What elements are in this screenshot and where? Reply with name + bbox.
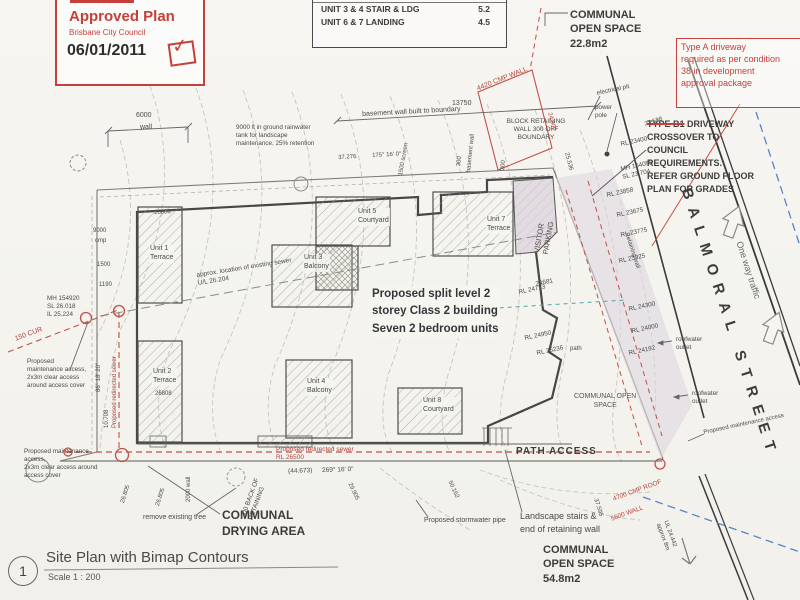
label-bearing-269: 269° 16' 0" — [322, 466, 354, 475]
label-maintenance-access-1: Proposed maintenance access, 2x3m clear … — [27, 358, 86, 389]
drawing-scale: Scale 1 : 200 — [48, 572, 101, 582]
label-26808-a: 26808 — [154, 209, 171, 217]
site-plan-document: Approved Plan Brisbane City Council 06/0… — [0, 0, 800, 600]
power-pole-symbol — [605, 152, 610, 157]
unit-area-table: UNIT 3 & 4 STAIR & LDG 5.2 UNIT 6 & 7 LA… — [312, 0, 507, 48]
drawing-title: Site Plan with Bimap Contours — [46, 549, 249, 566]
unit5-label: Unit 5 Courtyard — [357, 208, 390, 226]
label-power-pole: power pole — [595, 104, 612, 120]
label-cmp: cmp — [95, 238, 106, 246]
unit4-balcony-area — [286, 360, 352, 438]
type-b1-crossover-note: TYPE B1 DRIVEWAY CROSSOVER TO COUNCIL RE… — [647, 118, 799, 196]
stamp-top-edge — [70, 0, 134, 3]
label-rainwater-tank: 9000 lt in ground rainwater tank for lan… — [236, 124, 314, 148]
label-10708: 10.708 — [104, 410, 112, 428]
label-mh154920: MH 154920 SL 26.018 IL 25.224 — [47, 295, 80, 319]
label-26808-b: 26808 — [155, 391, 172, 399]
label-300-offset-b: 300 — [500, 160, 509, 171]
row-value: 5.2 — [478, 4, 490, 14]
label-remove-tree: remove existing tree — [143, 514, 206, 523]
label-redirected-sewer-vertical: Proposed redirected sewer — [112, 356, 120, 428]
label-redirected-sewer-bottom: Proposed redirected sewer RL 26500 — [276, 446, 354, 462]
unit2-label: Unit 2 Terrace — [152, 368, 177, 386]
stamp-title: Approved Plan — [69, 8, 175, 25]
label-path: path — [570, 346, 582, 354]
stamp-date: 06/01/2011 — [67, 42, 146, 60]
approval-stamp: Approved Plan Brisbane City Council 06/0… — [55, 0, 205, 86]
label-300-offset-a: 300 — [456, 156, 465, 167]
label-landscape-stairs: Landscape stairs & end of retaining wall — [520, 510, 600, 535]
row-label: UNIT 6 & 7 LANDING — [321, 17, 405, 27]
type-a-driveway-note: Type A driveway required as per conditio… — [676, 38, 800, 108]
communal-open-space-mid: COMMUNAL OPEN SPACE — [574, 393, 636, 411]
unit3-label: Unit 3 Balcony — [303, 254, 330, 272]
path-access-strip — [137, 428, 572, 447]
row-value: 4.5 — [478, 17, 490, 27]
table-row: UNIT 6 & 7 LANDING 4.5 — [313, 16, 506, 27]
stamp-org: Brisbane City Council — [69, 28, 145, 37]
label-boundary-bearing: 175° 16' 0" — [372, 151, 401, 160]
label-maintenance-access-2: Proposed maintenance access, 2x3m clear … — [24, 448, 98, 479]
label-stormwater-pipe: Proposed stormwater pipe — [424, 517, 506, 526]
label-wall: wall — [140, 124, 152, 133]
type-b1-rest-text: DRIVEWAY CROSSOVER TO COUNCIL REQUIREMEN… — [647, 119, 754, 194]
row-label: UNIT 3 & 4 STAIR & LDG — [321, 4, 420, 14]
communal-open-space-bottom: COMMUNAL OPEN SPACE 54.8m2 — [543, 543, 614, 586]
down-arrow-icon — [682, 538, 696, 564]
building-description: Proposed split level 2 storey Class 2 bu… — [371, 286, 500, 338]
label-boundary-angle-left: 86° 18' 20" — [96, 363, 104, 392]
communal-drying-area-label: COMMUNAL DRYING AREA — [222, 508, 305, 539]
unit8-label: Unit 8 Courtyard — [422, 397, 455, 415]
unit4-label: Unit 4 Balcony — [306, 378, 333, 396]
unit1-label: Unit 1 Terrace — [149, 245, 174, 263]
label-boundary-length: 37.276 — [338, 154, 357, 162]
check-glyph: ✓ — [171, 34, 190, 59]
label-2000-wall: 2000 wall — [186, 477, 194, 502]
label-1190: 1190 — [99, 282, 112, 290]
drawing-number-badge: 1 — [8, 556, 38, 586]
label-block-retaining: BLOCK RETAINING WALL 300 OFF BOUNDARY — [500, 118, 572, 142]
unit7-label: Unit 7 Terrace — [486, 216, 511, 234]
label-roofwater-outlet-2: roofwater outlet — [692, 390, 718, 406]
path-access-label: PATH ACCESS — [516, 446, 597, 459]
label-9000: 9000 — [93, 228, 106, 236]
up-arrow-icon — [718, 203, 750, 241]
label-1500: 1500 — [97, 262, 110, 270]
label-roofwater-outlet-1: roofwater outlet — [676, 336, 702, 352]
table-row: UNIT 3 & 4 STAIR & LDG 5.2 — [313, 2, 506, 14]
communal-open-space-top: COMMUNAL OPEN SPACE 22.8m2 — [570, 8, 641, 51]
title-underline — [44, 567, 338, 570]
label-dim6000: 6000 — [136, 112, 152, 121]
label-44673: (44.673) — [288, 467, 312, 476]
approved-check-icon: ✓ — [168, 40, 197, 66]
